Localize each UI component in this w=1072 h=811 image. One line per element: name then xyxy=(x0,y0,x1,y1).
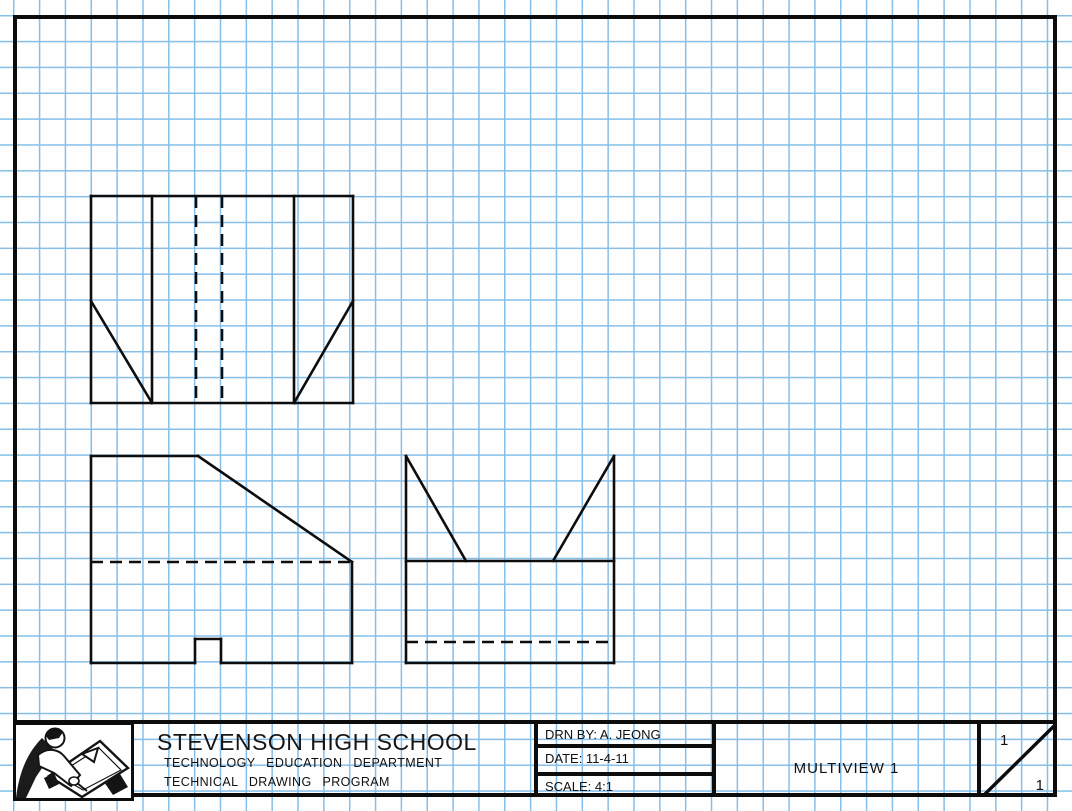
department-line: TECHNOLOGY EDUCATION DEPARTMENT xyxy=(164,756,442,770)
drawn-by-field: DRN BY: A. JEONG xyxy=(538,724,712,748)
draftsman-illustration xyxy=(13,722,134,801)
school-name: STEVENSON HIGH SCHOOL xyxy=(157,729,477,756)
drawing-sheet: STEVENSON HIGH SCHOOL TECHNOLOGY EDUCATI… xyxy=(0,0,1072,811)
draftsman-icon xyxy=(16,725,131,798)
side-view xyxy=(406,456,614,663)
multiview-drawing xyxy=(0,0,1072,811)
sheet-total: 1 xyxy=(1036,777,1044,794)
sheet-number-box: 1 1 xyxy=(977,724,1057,797)
drawing-info-column: DRN BY: A. JEONG DATE: 11-4-11 SCALE: 4:… xyxy=(534,724,712,797)
title-block: STEVENSON HIGH SCHOOL TECHNOLOGY EDUCATI… xyxy=(13,720,1057,797)
program-line: TECHNICAL DRAWING PROGRAM xyxy=(164,775,390,789)
sheet-number: 1 xyxy=(1000,732,1008,749)
top-view xyxy=(91,196,353,403)
drawing-title: MULTIVIEW 1 xyxy=(712,724,977,797)
scale-field: SCALE: 4:1 xyxy=(538,776,712,797)
front-view xyxy=(91,456,352,663)
date-field: DATE: 11-4-11 xyxy=(538,748,712,776)
sheet-divider-diagonal xyxy=(981,724,1057,797)
